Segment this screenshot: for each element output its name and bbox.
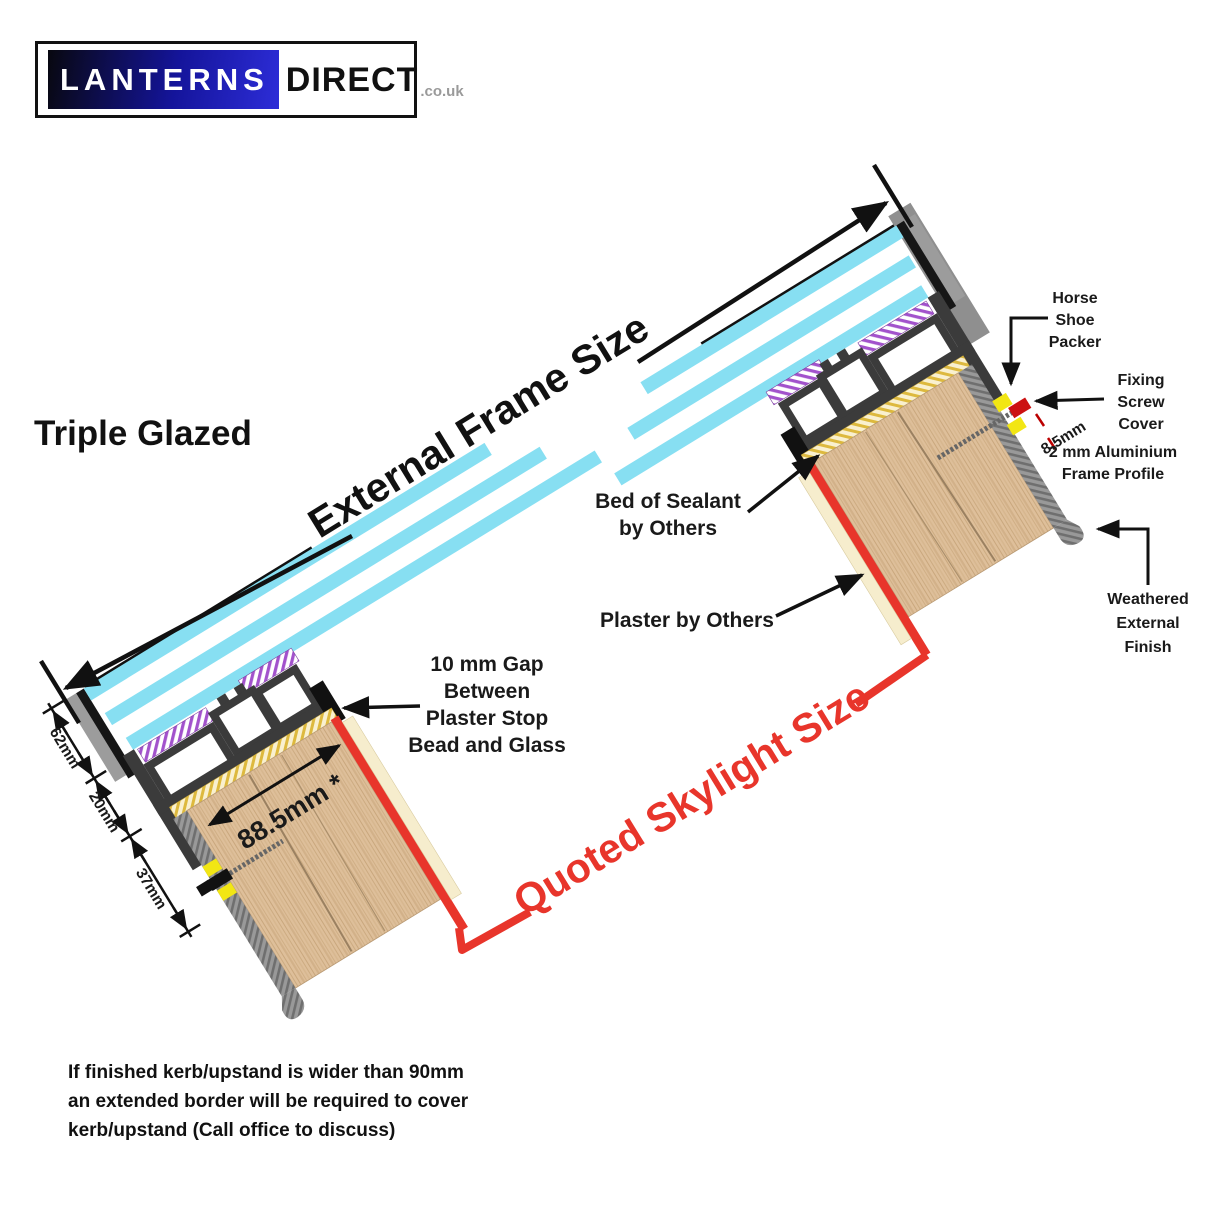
svg-text:Weathered: Weathered	[1107, 591, 1189, 608]
weathered-note: Weathered External Finish	[1098, 529, 1189, 656]
svg-text:Packer: Packer	[1049, 334, 1102, 351]
dim-frame-20mm: 20mm	[85, 789, 123, 836]
svg-text:Finish: Finish	[1124, 639, 1171, 656]
svg-text:Plaster Stop: Plaster Stop	[426, 707, 549, 730]
frame-profile-note: 2 mm Aluminium Frame Profile	[1049, 444, 1177, 483]
weathered-arrow	[1098, 529, 1148, 585]
svg-text:Frame Profile: Frame Profile	[1062, 466, 1164, 483]
svg-text:Horse: Horse	[1052, 290, 1097, 307]
gap-note: 10 mm Gap Between Plaster Stop Bead and …	[344, 653, 566, 757]
plaster-arrow	[776, 575, 862, 616]
footer-line: an extended border will be required to c…	[68, 1087, 468, 1116]
dim-glazing-62mm: 62mm	[46, 725, 84, 772]
gap-arrow	[344, 706, 420, 708]
edge-dim-tick	[1036, 414, 1044, 426]
svg-text:Bed of Sealant: Bed of Sealant	[595, 490, 741, 513]
svg-text:by Others: by Others	[619, 517, 717, 540]
svg-text:Shoe: Shoe	[1055, 312, 1094, 329]
fixing-screw-arrow	[1036, 399, 1104, 401]
quoted-skylight-size-label: Quoted Skylight Size	[505, 672, 877, 924]
footer-line: If finished kerb/upstand is wider than 9…	[68, 1058, 468, 1087]
fixing-screw-note: Fixing Screw Cover	[1036, 372, 1165, 433]
right-jamb-section	[574, 203, 1116, 745]
skylight-cross-section-diagram: 62mm 20mm 37mm 88.5mm *	[0, 0, 1214, 1214]
svg-text:Between: Between	[444, 680, 530, 703]
svg-text:Plaster by Others: Plaster by Others	[600, 609, 774, 632]
svg-text:Screw: Screw	[1117, 394, 1165, 411]
svg-text:Bead and Glass: Bead and Glass	[408, 734, 566, 757]
svg-text:Fixing: Fixing	[1117, 372, 1164, 389]
svg-text:External: External	[1116, 615, 1179, 632]
quoted-size-connector-left	[459, 912, 530, 950]
svg-text:10 mm Gap: 10 mm Gap	[430, 653, 543, 676]
svg-text:2 mm Aluminium: 2 mm Aluminium	[1049, 444, 1177, 461]
horse-shoe-arrow	[1011, 318, 1048, 384]
footer-line: kerb/upstand (Call office to discuss)	[68, 1116, 468, 1145]
plaster-note: Plaster by Others	[600, 575, 862, 632]
horse-shoe-note: Horse Shoe Packer	[1011, 290, 1101, 384]
footer-note: If finished kerb/upstand is wider than 9…	[68, 1058, 468, 1145]
svg-text:Cover: Cover	[1118, 416, 1163, 433]
dim-kerb-37mm: 37mm	[132, 865, 170, 912]
diagram-page: LANTERNS DIRECT .co.uk Triple Glazed	[0, 0, 1214, 1214]
